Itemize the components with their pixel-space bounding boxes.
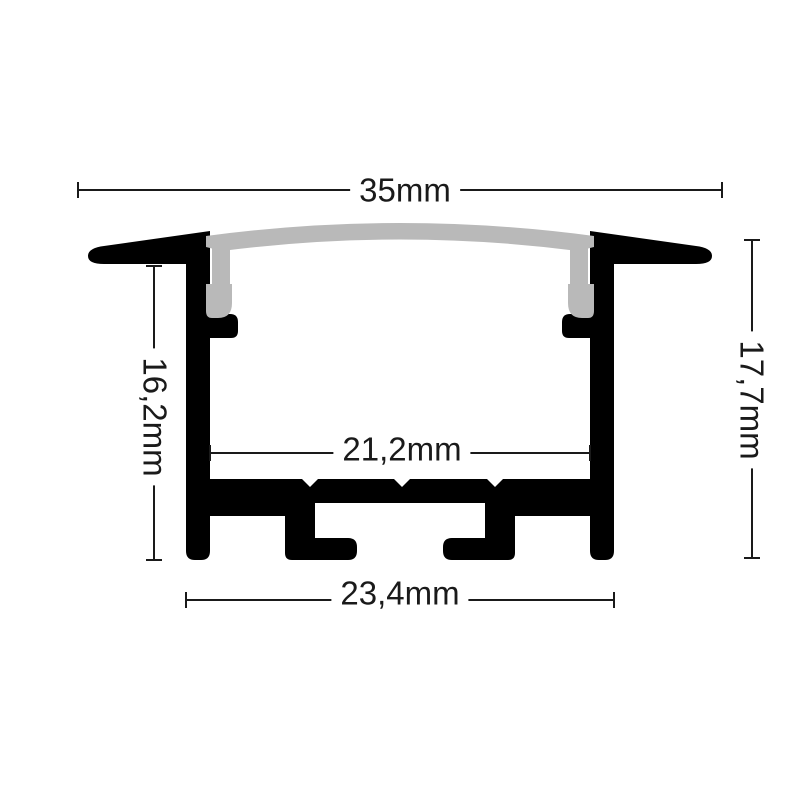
dim-right-height-label: 17,7mm — [733, 331, 772, 468]
dim-left-height-label: 16,2mm — [136, 348, 175, 485]
diffuser-left-hook — [206, 284, 232, 318]
profile-body — [88, 231, 712, 560]
dim-inner-width-label: 21,2mm — [333, 430, 470, 469]
base-slab — [186, 479, 614, 503]
dim-top-width-label: 35mm — [350, 171, 460, 210]
right-foot — [443, 503, 594, 560]
diffuser-cover — [206, 223, 594, 318]
left-foot — [206, 503, 357, 560]
profile-dimension-drawing: 35mm 21,2mm 23,4mm 16,2mm 17,7mm — [0, 0, 800, 800]
diffuser-right-hook — [568, 284, 594, 318]
dim-bottom-width-label: 23,4mm — [331, 574, 468, 613]
profile-cross-section — [0, 0, 800, 800]
diffuser-arc — [206, 223, 594, 251]
right-wing-wall — [590, 231, 712, 560]
